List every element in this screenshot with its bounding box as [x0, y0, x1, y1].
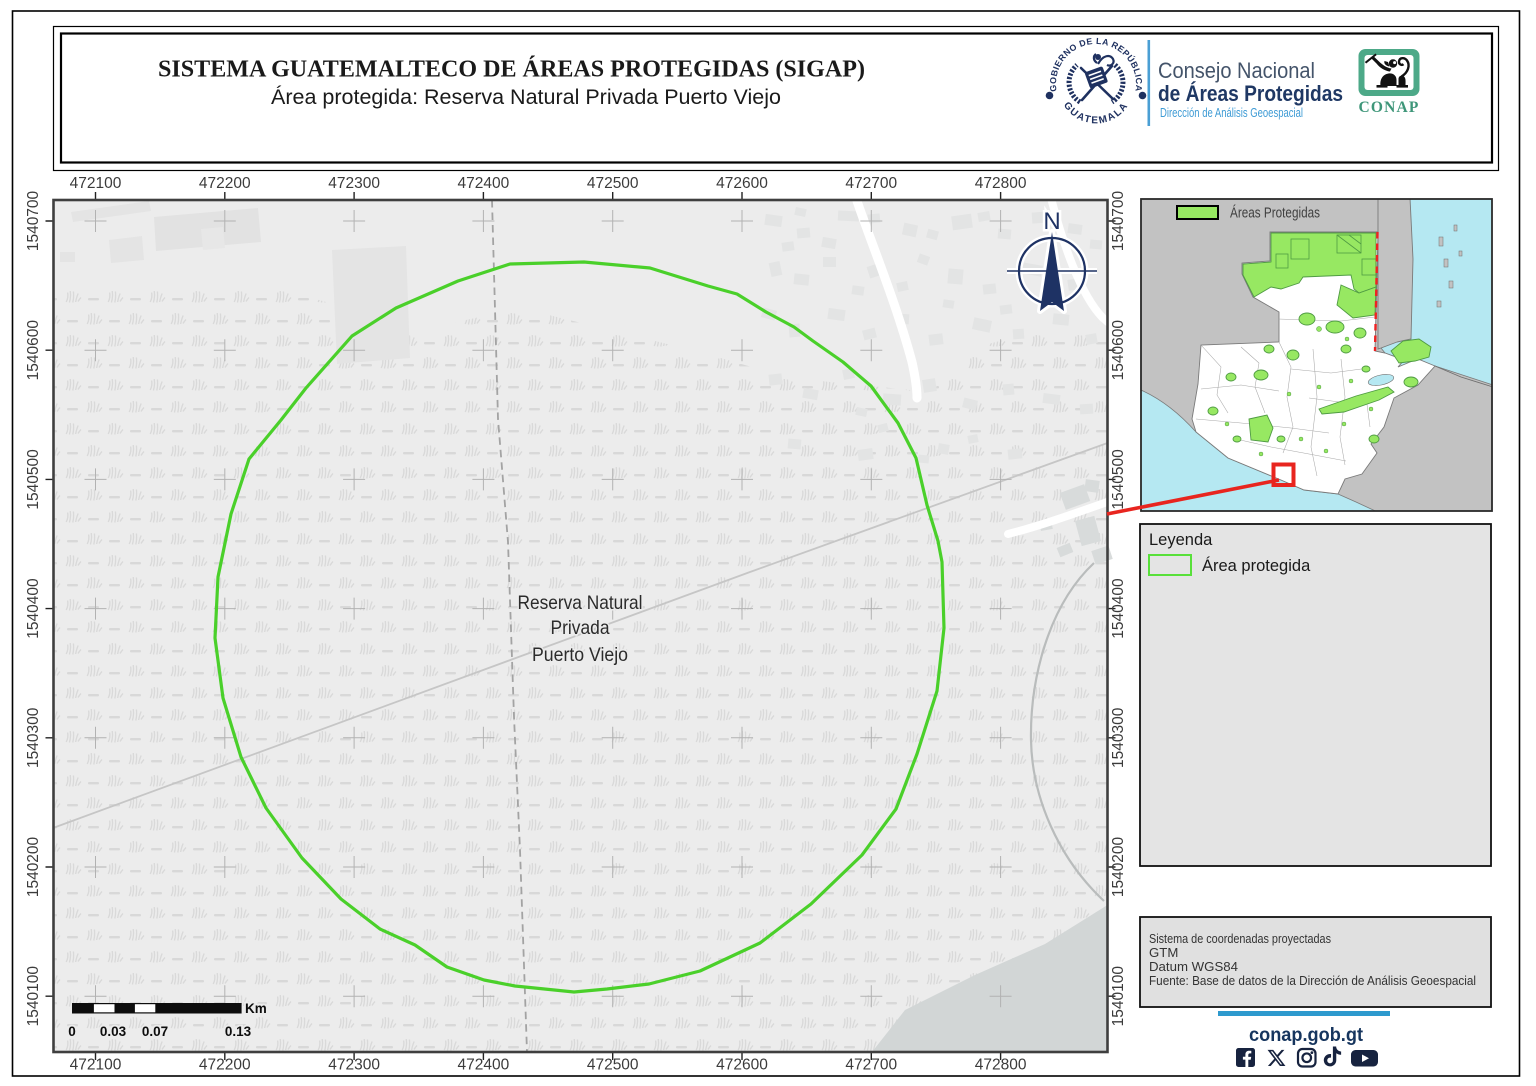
svg-text:GTM: GTM	[1149, 945, 1178, 960]
svg-text:472300: 472300	[328, 175, 380, 192]
svg-text:conap.gob.gt: conap.gob.gt	[1249, 1024, 1363, 1046]
svg-text:SISTEMA GUATEMALTECO DE ÁREAS: SISTEMA GUATEMALTECO DE ÁREAS PROTEGIDAS…	[158, 55, 865, 83]
svg-text:1540500: 1540500	[25, 449, 42, 510]
svg-text:1540600: 1540600	[1110, 320, 1127, 381]
svg-text:1540100: 1540100	[1110, 966, 1127, 1027]
svg-text:0.03: 0.03	[100, 1024, 127, 1039]
svg-text:Área protegida: Área protegida	[1202, 556, 1311, 575]
svg-text:472500: 472500	[587, 1057, 639, 1074]
svg-text:0.13: 0.13	[225, 1024, 252, 1039]
svg-text:1540400: 1540400	[1110, 578, 1127, 639]
svg-text:de Áreas Protegidas: de Áreas Protegidas	[1158, 81, 1343, 106]
svg-text:1540300: 1540300	[1110, 707, 1127, 768]
svg-text:CONAP: CONAP	[1358, 99, 1419, 116]
svg-text:472100: 472100	[70, 1057, 122, 1074]
svg-text:1540600: 1540600	[25, 320, 42, 381]
svg-text:472600: 472600	[716, 175, 768, 192]
svg-text:472200: 472200	[199, 175, 251, 192]
svg-text:472400: 472400	[458, 175, 510, 192]
svg-text:Dirección de Análisis Geoespac: Dirección de Análisis Geoespacial	[1160, 105, 1303, 120]
svg-text:472800: 472800	[975, 175, 1027, 192]
svg-text:Reserva Natural: Reserva Natural	[518, 592, 643, 614]
svg-text:472700: 472700	[845, 1057, 897, 1074]
svg-text:Datum WGS84: Datum WGS84	[1149, 959, 1238, 974]
svg-text:1540700: 1540700	[1110, 190, 1127, 251]
svg-text:Fuente: Base de datos de la Di: Fuente: Base de datos de la Dirección de…	[1149, 973, 1476, 988]
svg-text:0: 0	[68, 1024, 76, 1039]
svg-text:Puerto Viejo: Puerto Viejo	[532, 644, 628, 666]
svg-text:0.07: 0.07	[142, 1024, 168, 1039]
svg-text:472200: 472200	[199, 1057, 251, 1074]
svg-text:N: N	[1043, 208, 1060, 235]
svg-text:Área protegida: Reserva Natura: Área protegida: Reserva Natural Privada …	[271, 84, 781, 109]
svg-text:472700: 472700	[845, 175, 897, 192]
svg-text:472300: 472300	[328, 1057, 380, 1074]
svg-text:1540400: 1540400	[25, 578, 42, 639]
svg-text:Consejo Nacional: Consejo Nacional	[1158, 58, 1315, 83]
svg-text:Privada: Privada	[551, 617, 610, 639]
svg-text:Km: Km	[245, 1001, 267, 1016]
svg-text:1540200: 1540200	[25, 836, 42, 897]
svg-text:1540700: 1540700	[25, 190, 42, 251]
svg-text:472400: 472400	[458, 1057, 510, 1074]
svg-text:Áreas Protegidas: Áreas Protegidas	[1230, 205, 1320, 222]
svg-text:1540200: 1540200	[1110, 836, 1127, 897]
svg-text:Leyenda: Leyenda	[1149, 531, 1213, 549]
svg-text:1540300: 1540300	[25, 707, 42, 768]
svg-text:Sistema de coordenadas proyect: Sistema de coordenadas proyectadas	[1149, 931, 1331, 946]
svg-text:472500: 472500	[587, 175, 639, 192]
svg-text:472600: 472600	[716, 1057, 768, 1074]
svg-text:1540100: 1540100	[25, 966, 42, 1027]
svg-text:472100: 472100	[70, 175, 122, 192]
svg-text:472800: 472800	[975, 1057, 1027, 1074]
